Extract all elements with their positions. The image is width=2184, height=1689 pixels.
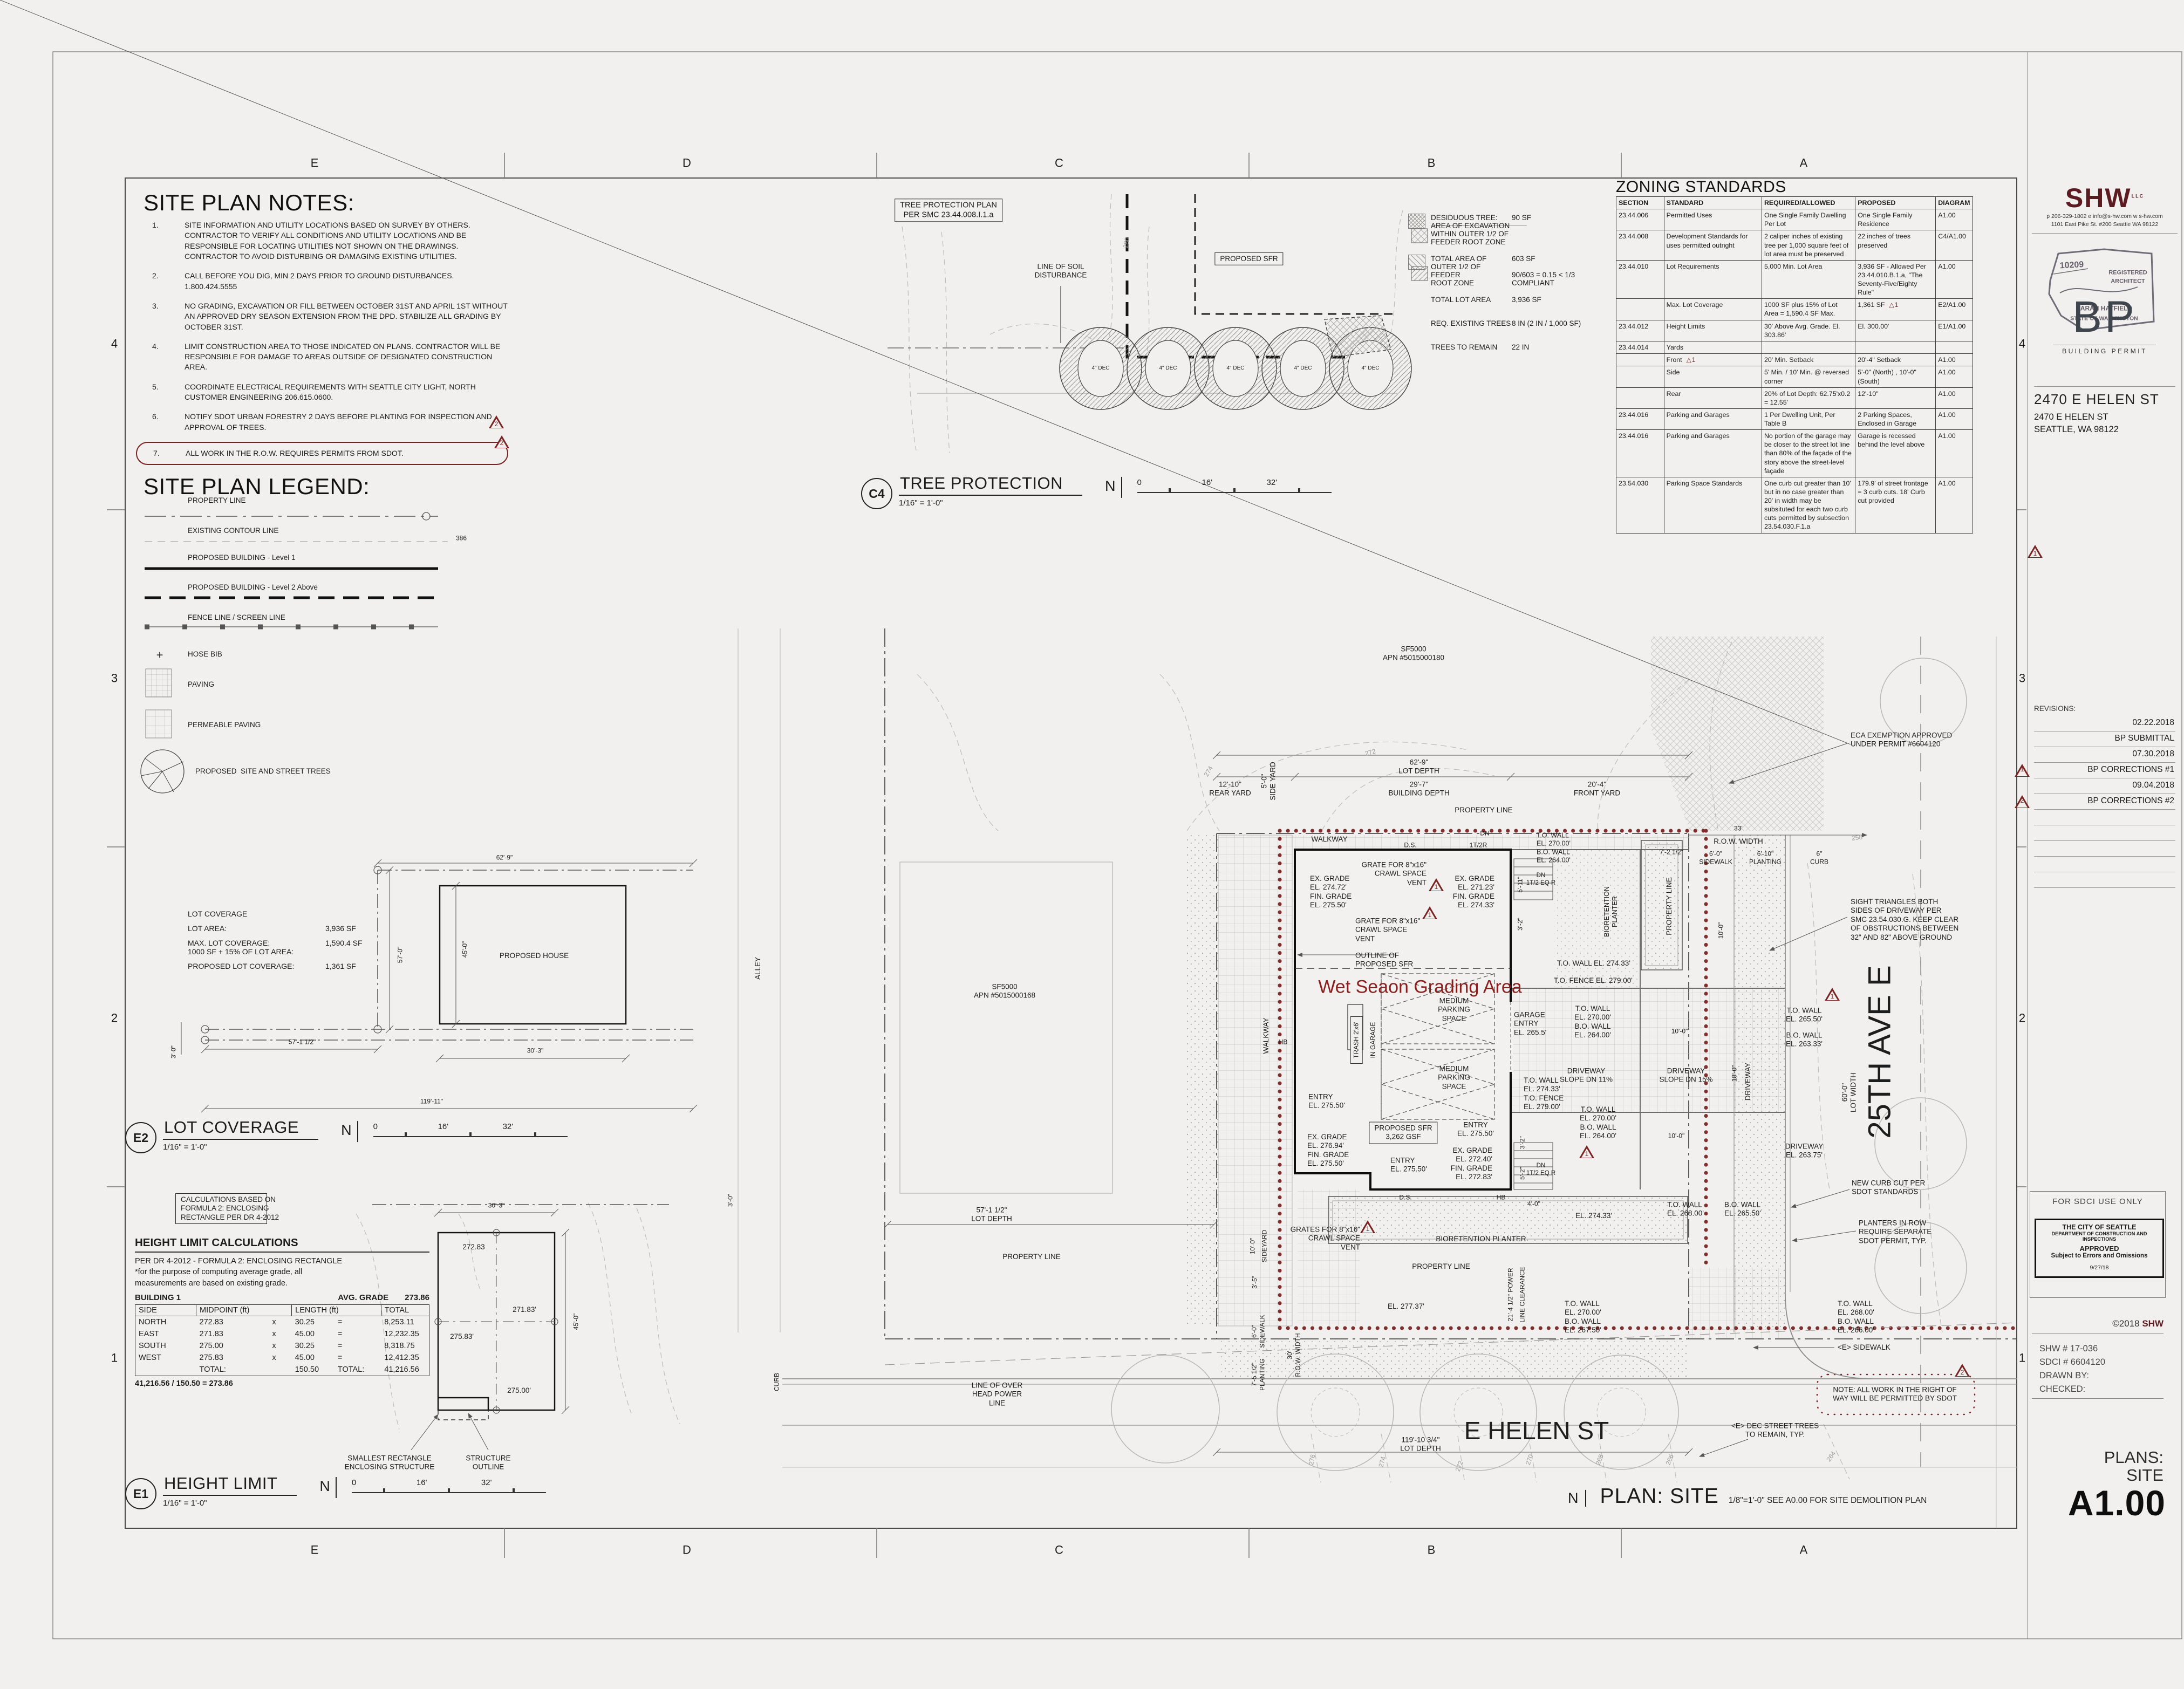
plan-label: 1: [111, 1351, 118, 1366]
plan-label: PROPOSED BUILDING - Level 2 Above: [188, 583, 318, 592]
plan-title: N PLAN: SITE 1/8"=1'-0" SEE A0.00 FOR SI…: [1568, 1485, 1927, 1508]
plan-label: 4" DEC: [1159, 365, 1177, 372]
plan-label: 5'-0" SIDE YARD: [1260, 762, 1278, 801]
plan-label: Wet Seaon Grading Area: [1318, 976, 1521, 998]
zoning-row: Rear 20% of Lot Depth: 62.75'x0.2 = 12.5…: [1616, 387, 1973, 408]
plan-label: T.O. WALL EL. 265.50': [1786, 1007, 1823, 1024]
revision-triangle: 2: [489, 415, 504, 428]
plan-label: GARAGE ENTRY EL. 265.5': [1514, 1010, 1546, 1037]
plan-label: PROPERTY LINE: [1002, 1253, 1061, 1261]
plan-label: TRASH 2'x6': [1350, 1016, 1363, 1064]
north-arrow: N: [1105, 477, 1122, 498]
plan-label: SF5000 APN #5015000168: [974, 983, 1035, 1001]
plan-label: PROPOSED SITE AND STREET TREES: [195, 767, 331, 776]
plan-label: 3'-2": [1517, 918, 1525, 931]
plan-label: PROPOSED SFR: [1214, 252, 1283, 265]
plan-label: R.O.W. WIDTH: [1714, 837, 1763, 846]
plan-label: 12'-10" REAR YARD: [1209, 781, 1251, 798]
plan-label: 119'-11": [420, 1098, 443, 1106]
lot-coverage-row: LOT AREA: 3,936 SF: [188, 924, 425, 933]
plan-label: E HELEN ST: [1464, 1416, 1609, 1446]
plan-label: 10'-0": [1671, 1028, 1688, 1036]
plan-label: 275.00': [507, 1386, 531, 1395]
plan-label: <E> SIDEWALK: [1838, 1343, 1890, 1352]
revision-row: 2 BP CORRECTIONS #2: [2034, 794, 2175, 810]
north-arrow: N: [341, 1121, 358, 1142]
revision-row: 02.22.2018: [2034, 716, 2175, 731]
plan-label: GRATES FOR 8"x16" CRAWL SPACE VENT: [1291, 1225, 1360, 1252]
plan-label: HB: [1497, 1194, 1506, 1202]
plan-label: 29'-7" BUILDING DEPTH: [1388, 781, 1449, 798]
plan-label: IN GARAGE: [1369, 1022, 1377, 1058]
plan-label: HB: [1279, 1038, 1288, 1047]
plan-label: HOSE BIB: [188, 650, 222, 659]
plan-label: 25TH AVE E: [1861, 965, 1900, 1138]
plan-label: DRIVEWAY SLOPE DN 15%: [1659, 1067, 1712, 1085]
plan-label: 33': [1734, 825, 1743, 833]
site-plan-note: 2. CALL BEFORE YOU DIG, MIN 2 DAYS PRIOR…: [144, 271, 508, 292]
zoning-row: 23.44.008 Development Standards for uses…: [1616, 230, 1973, 260]
legend-title: SITE PLAN LEGEND:: [144, 474, 370, 500]
height-calc-row: NORTH272.83x 30.25=8,253.11: [135, 1316, 429, 1328]
plan-label: DRIVEWAY: [1744, 1063, 1752, 1101]
plan-label: 30' R.O.W. WIDTH: [1286, 1333, 1301, 1377]
north-arrow: N: [319, 1477, 337, 1498]
plan-label: T.O. FENCE EL. 279.00': [1554, 976, 1633, 985]
sdci-box: FOR SDCI USE ONLY THE CITY OF SEATTLE DE…: [2030, 1191, 2166, 1298]
permit-type: BP: [2028, 292, 2182, 343]
plan-label: DN: [1480, 830, 1489, 838]
revision-row: 09.04.2018: [2034, 778, 2175, 794]
project-address: 2470 E HELEN ST: [2034, 391, 2175, 408]
plan-label: STRUCTURE OUTLINE: [466, 1454, 510, 1472]
tree-protection-legend: DESIDUOUS TREE: AREA OF EXCAVATION WITHI…: [1408, 214, 1586, 367]
plan-label: OUTLINE OF PROPOSED SFR: [1355, 952, 1413, 969]
revision-row: 1 BP CORRECTIONS #1: [2034, 763, 2175, 778]
tree-legend-row: TOTAL AREA OF OUTER 1/2 OF FEEDER ROOT Z…: [1408, 255, 1586, 287]
plan-label: PAVING: [188, 680, 214, 689]
lot-coverage-plan: [181, 859, 697, 1112]
zoning-header: SECTION: [1616, 197, 1664, 209]
site-plan-sheet: SITE PLAN NOTES: SITE PLAN LEGEND: ZONIN…: [0, 0, 2184, 1689]
plan-label: SF5000 APN #5015000180: [1383, 645, 1444, 663]
plan-label: A: [1800, 156, 1808, 171]
plan-label: T.O. WALL EL. 274.33' T.O. FENCE EL. 279…: [1524, 1076, 1564, 1112]
plan-label: DN 1T/2 EQ R: [1526, 1162, 1555, 1177]
zoning-header: DIAGRAM: [1936, 197, 1973, 209]
zoning-row: 23.44.012 Height Limits 30' Above Avg. G…: [1616, 320, 1973, 341]
plan-label: PROPERTY LINE: [1455, 806, 1513, 815]
plan-label: DRIVEWAY EL. 263.75': [1785, 1143, 1824, 1160]
plan-label: SIGHT TRIANGLES BOTH SIDES OF DRIVEWAY P…: [1851, 898, 1958, 942]
plan-label: PROPOSED BUILDING - Level 1: [188, 553, 296, 562]
plan-label: 3: [2019, 672, 2025, 686]
plan-label: 2: [2019, 1011, 2025, 1026]
plan-label: ALLEY: [754, 957, 762, 980]
plan-label: 4'-0": [1527, 1200, 1540, 1208]
plan-label: PROPOSED HOUSE: [500, 952, 569, 960]
plan-label: 275.83': [450, 1332, 474, 1341]
plan-label: B.O. WALL EL. 265.50': [1724, 1201, 1761, 1219]
plan-label: B: [1428, 1543, 1436, 1558]
plan-label: E: [311, 156, 319, 171]
plan-label: EX. GRADE EL. 272.40' FIN. GRADE EL. 272…: [1451, 1146, 1492, 1182]
plan-label: 7'-5 1/2" PLANTING: [1250, 1358, 1266, 1391]
zoning-standards-table: SECTION STANDARD REQUIRED/ALLOWED PROPOS…: [1616, 196, 1973, 534]
plan-label: 10'-0": [1668, 1132, 1685, 1140]
plan-label: 18'-0": [1731, 1065, 1739, 1082]
plan-label: MEDIUM PARKING SPACE: [1438, 996, 1470, 1023]
lot-coverage-row: MAX. LOT COVERAGE: 1000 SF + 15% OF LOT …: [188, 939, 425, 956]
approval-stamp: THE CITY OF SEATTLE DEPARTMENT OF CONSTR…: [2035, 1219, 2164, 1278]
plan-label: 3: [111, 672, 118, 686]
plan-label: PLANTERS IN ROW REQUIRE SEPARATE SDOT PE…: [1859, 1219, 1932, 1245]
plan-label: T.O. WALL EL. 268.00' B.O. WALL EL. 266.…: [1838, 1300, 1874, 1335]
plan-label: 7'-2 1/2": [1660, 849, 1683, 857]
plan-label: 4: [2019, 337, 2025, 352]
permit-type-label: BUILDING PERMIT: [2028, 347, 2182, 355]
zoning-row: 23.44.016 Parking and Garages No portion…: [1616, 430, 1973, 477]
shw-logo: SHWLLC: [2028, 184, 2182, 211]
plan-label: D: [682, 156, 691, 171]
plan-label: 30'-3": [488, 1202, 505, 1210]
plan-label: <E> DEC STREET TREES TO REMAIN, TYP.: [1731, 1422, 1819, 1440]
plan-label: 5'-2": [1519, 1167, 1527, 1180]
revision-row: [2034, 810, 2175, 825]
contact-line: p 206-329-1802 e info@s-hw.com w s-hw.co…: [2028, 213, 2182, 220]
revisions-block: REVISIONS: 02.22.2018 BP SUBMITTAL 07.30…: [2028, 705, 2182, 888]
detail-bubble: E2: [125, 1122, 156, 1153]
site-plan-note: 1. SITE INFORMATION AND UTILITY LOCATION…: [144, 220, 508, 262]
zoning-header: REQUIRED/ALLOWED: [1762, 197, 1855, 209]
site-plan-note: 6. NOTIFY SDOT URBAN FORESTRY 2 DAYS BEF…: [144, 412, 508, 433]
plan-label: NEW CURB CUT PER SDOT STANDARDS: [1852, 1179, 1925, 1197]
lot-coverage-summary: LOT COVERAGE LOT AREA: 3,936 SF MAX. LOT…: [188, 910, 425, 976]
revision-row: [2034, 857, 2175, 872]
legend-swatch: [1408, 255, 1425, 270]
revision-row: BP SUBMITTAL: [2034, 731, 2175, 747]
plan-label: 3'-0": [170, 1045, 178, 1058]
plan-label: 4" DEC: [1226, 365, 1244, 372]
revision-triangle: 2: [2015, 795, 2030, 808]
plan-label: ENTRY EL. 275.50': [1457, 1121, 1494, 1139]
plan-label: 3'-0": [727, 1194, 735, 1207]
plan-label: BIORETENTION PLANTER: [1436, 1235, 1526, 1243]
plan-label: 119'-10 3/4" LOT DEPTH: [1400, 1436, 1441, 1454]
height-limit-calculations: HEIGHT LIMIT CALCULATIONS PER DR 4-2012 …: [135, 1236, 429, 1388]
copyright: ©2018 SHW: [2112, 1318, 2163, 1329]
legend-swatch: [1408, 214, 1425, 229]
drawing-section-title: C4 TREE PROTECTION 1/16" = 1'-0" N 016'3…: [861, 474, 1332, 509]
revision-row: [2034, 825, 2175, 841]
lot-coverage-row: PROPOSED LOT COVERAGE: 1,361 SF: [188, 962, 425, 970]
plan-label: 3'-2": [1519, 1136, 1527, 1149]
site-plan-notes: 1. SITE INFORMATION AND UTILITY LOCATION…: [144, 220, 508, 474]
revision-triangle: 2: [494, 435, 509, 448]
plan-label: D.S.: [1399, 1194, 1411, 1202]
height-calc-row: SOUTH275.00x 30.25=8,318.75: [135, 1340, 429, 1352]
revision-triangle: 1: [1422, 906, 1437, 919]
plan-label: 4" DEC: [1361, 365, 1379, 372]
zoning-row: 23.44.006 Permitted Uses One Single Fami…: [1616, 209, 1973, 230]
plan-label: 6'-0" SIDEWALK: [1250, 1315, 1266, 1348]
plan-label: PROPOSED SFR 3,262 GSF: [1369, 1122, 1437, 1144]
zoning-title: ZONING STANDARDS: [1616, 178, 1786, 196]
plan-label: SIDEYARD: [1261, 1230, 1269, 1262]
scale-bar: 016'32': [352, 1478, 546, 1493]
plan-label: T.O. WALL EL. 270.00' B.O. WALL EL. 264.…: [1580, 1105, 1616, 1141]
plan-label: 62'-9" LOT DEPTH: [1398, 758, 1439, 776]
revision-triangle: 1: [1429, 878, 1444, 891]
detail-bubble: E1: [125, 1478, 156, 1509]
sheet-number: A1.00: [2068, 1482, 2166, 1523]
zoning-row: 23.44.014 Yards: [1616, 341, 1973, 353]
zoning-header: STANDARD: [1664, 197, 1762, 209]
plan-label: A: [1800, 1543, 1808, 1558]
plan-label: SMALLEST RECTANGLE ENCLOSING STRUCTURE: [345, 1454, 435, 1472]
plan-label: LINE OF OVER HEAD POWER LINE: [972, 1381, 1023, 1407]
plan-label: C: [1055, 1543, 1063, 1558]
plan-label: ENTRY EL. 275.50': [1390, 1157, 1427, 1174]
plan-label: +: [156, 648, 163, 663]
plan-label: 10'-0": [1249, 1238, 1257, 1255]
plan-label: EX. GRADE EL. 274.72' FIN. GRADE EL. 275…: [1310, 874, 1352, 910]
north-arrow: N: [1568, 1490, 1586, 1507]
plan-label: 386: [456, 535, 467, 543]
height-calc-row: TOTAL: 150.50TOTAL:41,216.56: [135, 1364, 429, 1376]
plan-label: PROPERTY LINE: [1665, 877, 1674, 935]
zoning-row: 23.44.016 Parking and Garages 1 Per Dwel…: [1616, 408, 1973, 429]
plan-label: TREE PROTECTION PLAN PER SMC 23.44.008.I…: [895, 199, 1002, 222]
plan-label: T.O. WALL EL. 268.00': [1667, 1201, 1704, 1219]
height-calc-table: SIDE MIDPOINT (ft) LENGTH (ft) TOTAL NOR…: [135, 1304, 429, 1376]
plan-label: B.O. WALL EL. 263.33': [1786, 1031, 1823, 1049]
contact-line: 1101 East Pike St. #200 Seattle WA 98122: [2028, 221, 2182, 228]
plan-label: 60'-0" LOT WIDTH: [1841, 1072, 1859, 1112]
plan-label: 10'-0": [1717, 922, 1725, 939]
zoning-header: PROPOSED: [1855, 197, 1936, 209]
plan-label: T.O. WALL EL. 270.00' B.O. WALL EL. 264.…: [1574, 1004, 1611, 1040]
plan-label: MEDIUM PARKING SPACE: [1438, 1064, 1470, 1091]
plan-label: LINE OF SOIL DISTURBANCE: [1035, 263, 1087, 281]
plan-label: 6'-0" SIDEWALK: [1699, 850, 1732, 865]
plan-label: C: [1055, 156, 1063, 171]
plan-label: 3'-5": [1251, 1276, 1259, 1289]
plan-label: 271.83': [513, 1305, 536, 1314]
project-numbers: SHW # 17-036 SDCI # 6604120 DRAWN BY: CH…: [2039, 1342, 2105, 1396]
plan-label: 62'-9": [496, 854, 513, 862]
plan-label: 1T/2R: [1470, 842, 1487, 850]
plan-label: 258: [1851, 833, 1863, 842]
plan-label: WALKWAY: [1311, 835, 1347, 844]
plan-label: 57'-1 1/2" LOT DEPTH: [971, 1206, 1012, 1224]
notes-title: SITE PLAN NOTES:: [144, 190, 354, 216]
plan-label: BIORETENTION PLANTER: [1603, 886, 1620, 937]
hcalc-note-box: CALCULATIONS BASED ON FORMULA 2: ENCLOSI…: [175, 1193, 267, 1224]
revision-triangle: 1: [1360, 1220, 1375, 1233]
title-block: SHWLLC p 206-329-1802 e info@s-hw.com w …: [2028, 52, 2182, 1639]
plan-label: 30'-3": [527, 1047, 544, 1055]
revision-triangle: 2: [1955, 1364, 1970, 1377]
revision-triangle: 1: [1579, 1145, 1594, 1158]
site-plan-note: 3. NO GRADING, EXCAVATION OR FILL BETWEE…: [144, 301, 508, 332]
lot-coverage-row: LOT COVERAGE: [188, 910, 425, 918]
plan-label: E: [311, 1543, 319, 1558]
plan-label: LINE CLEARANCE: [1519, 1267, 1527, 1322]
plan-label: FENCE LINE / SCREEN LINE: [188, 613, 285, 622]
tree-legend-row: REQ. EXISTING TREES 8 IN (2 IN / 1,000 S…: [1408, 319, 1586, 334]
plan-label: GRATE FOR 8"x16" CRAWL SPACE VENT: [1362, 860, 1427, 887]
plan-label: 57'-1 1/2": [289, 1038, 316, 1047]
revision-triangle: 1: [1825, 988, 1840, 1001]
plan-label: 45'-0": [572, 1314, 581, 1330]
plan-label: 6'-10" PLANTING: [1749, 850, 1782, 865]
height-calc-row: EAST271.83x 45.00=12,232.35: [135, 1328, 429, 1340]
plan-label: WALKWAY: [1262, 1017, 1271, 1054]
site-plan-note: 4. LIMIT CONSTRUCTION AREA TO THOSE INDI…: [144, 341, 508, 373]
zoning-row: Max. Lot Coverage 1000 SF plus 15% of Lo…: [1616, 299, 1973, 320]
plan-label: 4: [111, 337, 118, 352]
zoning-row: Side 5' Min. / 10' Min. @ reversed corne…: [1616, 366, 1973, 387]
plan-label: PROPERTY LINE: [1412, 1262, 1470, 1271]
plan-label: T.O. WALL EL. 270.00' B.O. WALL EL. 264.…: [1537, 832, 1571, 865]
plan-label: 1: [2019, 1351, 2025, 1366]
plan-label: 45'-0": [461, 941, 469, 958]
detail-bubble: C4: [861, 478, 892, 509]
plan-label: EX. GRADE EL. 271.23' FIN. GRADE EL. 274…: [1453, 874, 1494, 910]
plan-label: T.O. WALL EL. 274.33': [1557, 959, 1630, 968]
plan-label: 272.83: [462, 1243, 484, 1252]
drawing-section-title: E1 HEIGHT LIMIT 1/16" = 1'-0" N 016'32': [125, 1474, 546, 1509]
plan-label: B: [1428, 156, 1436, 171]
plan-label: GRATE FOR 8"x16" CRAWL SPACE VENT: [1355, 917, 1420, 943]
plan-label: EX. GRADE EL. 276.94' FIN. GRADE EL. 275…: [1307, 1133, 1349, 1168]
plan-label: PERMEABLE PAVING: [188, 721, 261, 729]
plan-label: D.S.: [1404, 842, 1416, 850]
site-plan-note: 7. ALL WORK IN THE R.O.W. REQUIRES PERMI…: [136, 442, 508, 465]
plan-label: ECA EXEMPTION APPROVED UNDER PERMIT #660…: [1851, 731, 1952, 749]
plan-label: PROPERTY LINE: [188, 496, 246, 505]
plan-label: 2: [111, 1011, 118, 1026]
plan-label: 6" CURB: [1810, 850, 1828, 865]
plan-label: EL. 274.33': [1575, 1212, 1612, 1220]
sheet-title: PLANS: SITE: [2104, 1449, 2163, 1484]
revision-row: [2034, 841, 2175, 857]
plan-label: 4" DEC: [1091, 365, 1109, 372]
drawing-section-title: E2 LOT COVERAGE 1/16" = 1'-0" N 016'32': [125, 1118, 568, 1153]
plan-label: 21'-4 1/2" POWER: [1507, 1268, 1515, 1321]
plan-label: CURB: [773, 1373, 781, 1391]
zoning-row: 23.54.030 Parking Space Standards One cu…: [1616, 477, 1973, 533]
plan-label: D: [682, 1543, 691, 1558]
revision-row: [2034, 872, 2175, 888]
site-plan-note: 5. COORDINATE ELECTRICAL REQUIREMENTS WI…: [144, 382, 508, 403]
plan-label: 57'-0": [397, 947, 405, 963]
plan-label: NOTE: ALL WORK IN THE RIGHT OF WAY WILL …: [1833, 1386, 1957, 1404]
plan-label: DRIVEWAY SLOPE DN 11%: [1560, 1067, 1613, 1085]
tree-legend-row: TOTAL LOT AREA 3,936 SF: [1408, 296, 1586, 311]
tree-legend-row: DESIDUOUS TREE: AREA OF EXCAVATION WITHI…: [1408, 214, 1586, 246]
plan-label: EXISTING CONTOUR LINE: [188, 526, 279, 535]
plan-label: 4" DEC: [1294, 365, 1312, 372]
revision-row: 07.30.2018: [2034, 747, 2175, 763]
plan-label: 20'-4" FRONT YARD: [1574, 781, 1620, 798]
zoning-row: Front1 20' Min. Setback 20'-4" Setback A…: [1616, 353, 1973, 366]
scale-bar: 016'32': [373, 1122, 568, 1137]
plan-label: EL. 277.37': [1388, 1302, 1424, 1311]
plan-label: T.O. WALL EL. 270.00' B.O. WALL EL. 267.…: [1565, 1300, 1601, 1335]
tree-legend-row: TREES TO REMAIN 22 IN: [1408, 343, 1586, 358]
revision-triangle: 1: [2015, 764, 2030, 777]
plan-label: 5'-11": [1517, 877, 1525, 893]
plan-label: DN 1T/2 EQ R: [1526, 872, 1555, 887]
plan-label: ENTRY EL. 275.50': [1308, 1093, 1345, 1111]
scale-bar: 016'32': [1137, 478, 1332, 493]
height-calc-row: WEST275.83x 45.00=12,412.35: [135, 1352, 429, 1364]
zoning-row: 23.44.010 Lot Requirements 5,000 Min. Lo…: [1616, 260, 1973, 299]
